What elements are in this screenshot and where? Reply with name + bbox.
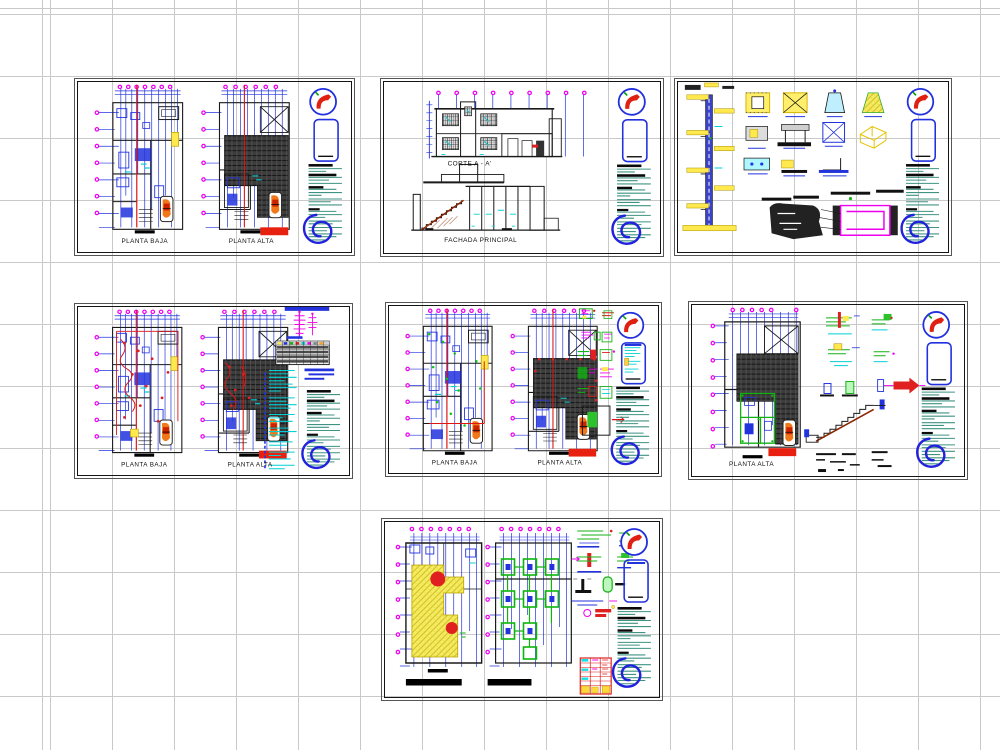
sheet-architectural-plans[interactable]: PLANTA BAJA PLANTA ALTA <box>74 78 355 256</box>
plan-label: PLANTA BAJA <box>121 461 168 468</box>
drawing-canvas[interactable]: PLANTA BAJA PLANTA ALTA <box>0 0 1000 750</box>
wall-section-detail <box>683 83 736 231</box>
sheet-electrical-plans[interactable]: PLANTA BAJA PLANTA ALTA <box>74 303 353 479</box>
sheet-chrome <box>902 89 939 243</box>
plan-label: PLANTA ALTA <box>228 461 273 468</box>
beam-plan-drawing <box>488 529 572 686</box>
column-schedule-table <box>580 658 611 694</box>
sheet-drawing <box>675 79 951 255</box>
plan-label: PLANTA ALTA <box>229 238 275 245</box>
floor-plans-drawing <box>408 309 598 457</box>
plan-label: PLANTA BAJA <box>121 238 168 245</box>
floor-plans-drawing <box>97 85 289 235</box>
sheet-drawing: PLANTA ALTA <box>689 302 967 479</box>
sheet-chrome <box>917 312 955 467</box>
sheet-section-elevation[interactable]: CORTE A - A' FACHADA PRINCIPAL <box>380 78 664 257</box>
sheet-foundation-plans[interactable] <box>381 518 663 701</box>
foundation-hatch-details <box>762 190 904 239</box>
sheet-drawing <box>382 519 662 700</box>
stair-detail-drawings <box>804 312 925 472</box>
elevation-label: FACHADA PRINCIPAL <box>444 237 517 244</box>
sheet-construction-details[interactable] <box>674 78 952 256</box>
foundation-plan-drawing <box>398 529 482 686</box>
sheet-chrome <box>612 313 649 464</box>
sheet-drawing: CORTE A - A' FACHADA PRINCIPAL <box>381 79 663 256</box>
floor-plans-drawing <box>97 310 288 459</box>
sheet-chrome <box>304 89 342 243</box>
sheet-drawing: PLANTA BAJA PLANTA ALTA <box>75 304 352 478</box>
section-label: CORTE A - A' <box>448 161 492 168</box>
plan-label: PLANTA BAJA <box>432 459 478 466</box>
section-drawing <box>426 93 584 159</box>
sheet-sanitary-plans[interactable]: PLANTA BAJA PLANTA ALTA <box>385 302 662 477</box>
sheet-drawing: PLANTA BAJA PLANTA ALTA <box>75 79 354 255</box>
sheet-drawing: PLANTA BAJA PLANTA ALTA <box>386 303 661 476</box>
sheet-chrome <box>612 89 650 244</box>
sheet-chrome <box>613 529 651 687</box>
plan-label: PLANTA ALTA <box>538 459 583 466</box>
elevation-drawing <box>411 165 560 231</box>
roof-plan-drawing <box>713 310 800 458</box>
sheet-roof-stair-details[interactable]: PLANTA ALTA <box>688 301 968 480</box>
plan-label: PLANTA ALTA <box>729 461 774 468</box>
detail-thumbnails <box>744 89 886 176</box>
